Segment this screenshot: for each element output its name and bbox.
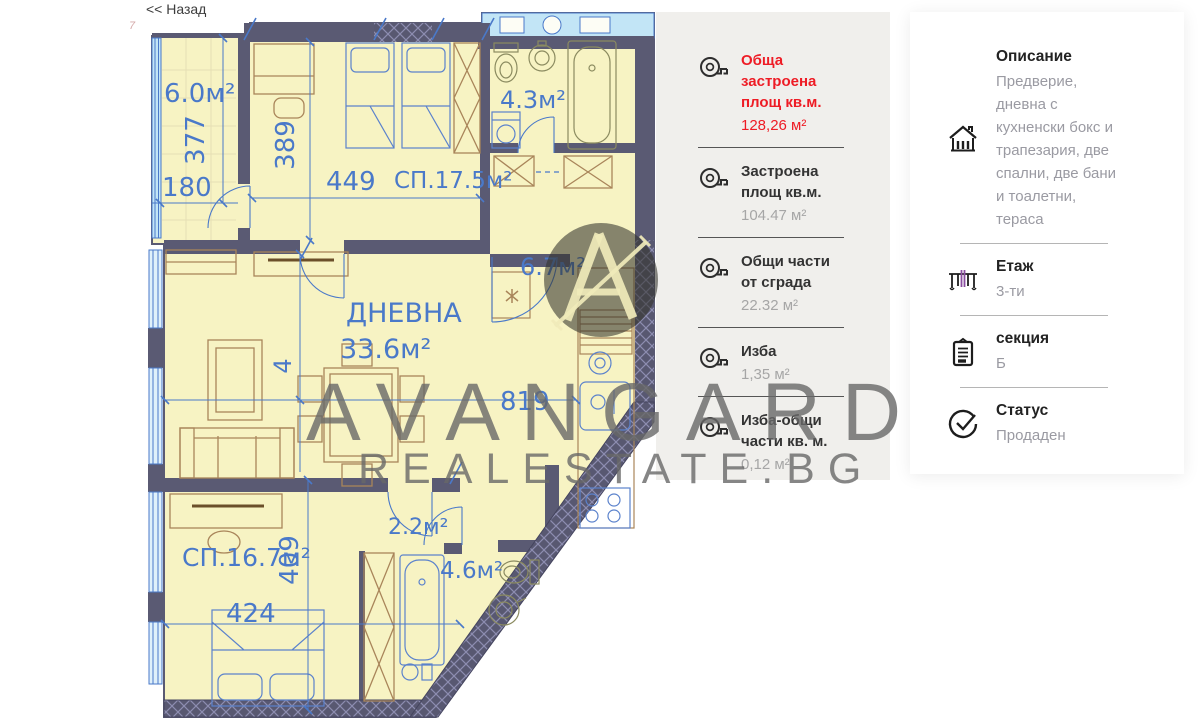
detail-item-section: секция Б xyxy=(946,328,1184,375)
detail-value: Б xyxy=(996,352,1118,375)
detail-value: 3-ти xyxy=(996,280,1118,303)
floor-plan: 6.0м² 377 180 389 449 СП.17.5м² 4.3м² 6.… xyxy=(148,10,660,719)
dim-180-label: 180 xyxy=(162,173,212,203)
measurement-value: 104.47 м² xyxy=(741,207,849,224)
divider xyxy=(698,327,844,328)
measurement-label: Общи части от сграда xyxy=(741,251,849,293)
measurements-panel: Обща застроена площ кв.м. 128,26 м² Заст… xyxy=(656,12,890,480)
detail-label: секция xyxy=(996,328,1118,350)
measurement-item-built-up: Застроена площ кв.м. 104.47 м² xyxy=(698,161,890,224)
tape-measure-icon xyxy=(698,251,728,314)
tape-measure-icon xyxy=(698,50,728,134)
measurement-item-common-parts: Общи части от сграда 22.32 м² xyxy=(698,251,890,314)
room-living-title: ДНЕВНА xyxy=(346,298,462,329)
dim-4-label: 4 xyxy=(269,358,297,373)
floors-icon xyxy=(946,256,980,303)
detail-label: Етаж xyxy=(996,256,1118,278)
divider xyxy=(960,387,1108,388)
room-terrace-label: 6.0м² xyxy=(164,79,235,109)
measurement-value: 22.32 м² xyxy=(741,297,849,314)
tape-measure-icon xyxy=(698,410,728,473)
divider xyxy=(698,237,844,238)
bottom-wall-hatched xyxy=(164,700,432,717)
house-icon xyxy=(946,46,980,231)
measurement-label: Обща застроена площ кв.м. xyxy=(741,50,849,113)
room-bath1-label: 4.3м² xyxy=(500,86,566,114)
tape-measure-icon xyxy=(698,341,728,383)
clipboard-icon xyxy=(946,328,980,375)
divider xyxy=(698,147,844,148)
dim-819-label: 819 xyxy=(500,387,550,417)
tape-measure-icon xyxy=(698,161,728,224)
detail-label: Описание xyxy=(996,46,1118,68)
dim-389-label: 389 xyxy=(271,120,301,170)
measurement-value: 1,35 м² xyxy=(741,366,849,383)
divider xyxy=(960,243,1108,244)
measurement-label: Изба-общи части кв. м. xyxy=(741,410,849,452)
details-panel: Описание Предверие, дневна с кухненски б… xyxy=(910,12,1184,474)
measurement-value: 0,12 м² xyxy=(741,456,849,473)
room-bedroom1-label: СП.17.5м² xyxy=(394,168,512,194)
detail-value: Предверие, дневна с кухненски бокс и тра… xyxy=(996,70,1118,231)
dim-449-label: 449 xyxy=(326,167,376,197)
measurement-item-total: Обща застроена площ кв.м. 128,26 м² xyxy=(698,50,890,134)
measurement-item-basement: Изба 1,35 м² xyxy=(698,341,890,383)
divider xyxy=(698,396,844,397)
room-corridor-label: 2.2м² xyxy=(388,515,448,540)
measurement-item-basement-common: Изба-общи части кв. м. 0,12 м² xyxy=(698,410,890,473)
detail-item-description: Описание Предверие, дневна с кухненски б… xyxy=(946,46,1184,231)
room-hall-label: 6.7м² xyxy=(520,253,586,281)
divider xyxy=(960,315,1108,316)
detail-label: Статус xyxy=(996,400,1118,422)
room-bath2-label: 4.6м² xyxy=(440,558,503,584)
top-balcony xyxy=(482,13,654,38)
measurement-label: Застроена площ кв.м. xyxy=(741,161,849,203)
detail-item-floor: Етаж 3-ти xyxy=(946,256,1184,303)
detail-value: Продаден xyxy=(996,424,1118,447)
back-link[interactable]: << Назад xyxy=(146,1,206,17)
dim-424-label: 424 xyxy=(226,599,276,629)
check-circle-icon xyxy=(946,400,980,447)
dim-409-label: 409 xyxy=(275,535,305,585)
page: << Назад 7 xyxy=(0,0,1200,719)
measurement-label: Изба xyxy=(741,341,849,362)
edge-dimension: 7 xyxy=(129,20,135,32)
dim-377-label: 377 xyxy=(181,115,211,165)
measurement-value: 128,26 м² xyxy=(741,117,849,134)
room-living-area: 33.6м² xyxy=(340,334,431,365)
detail-item-status: Статус Продаден xyxy=(946,400,1184,447)
